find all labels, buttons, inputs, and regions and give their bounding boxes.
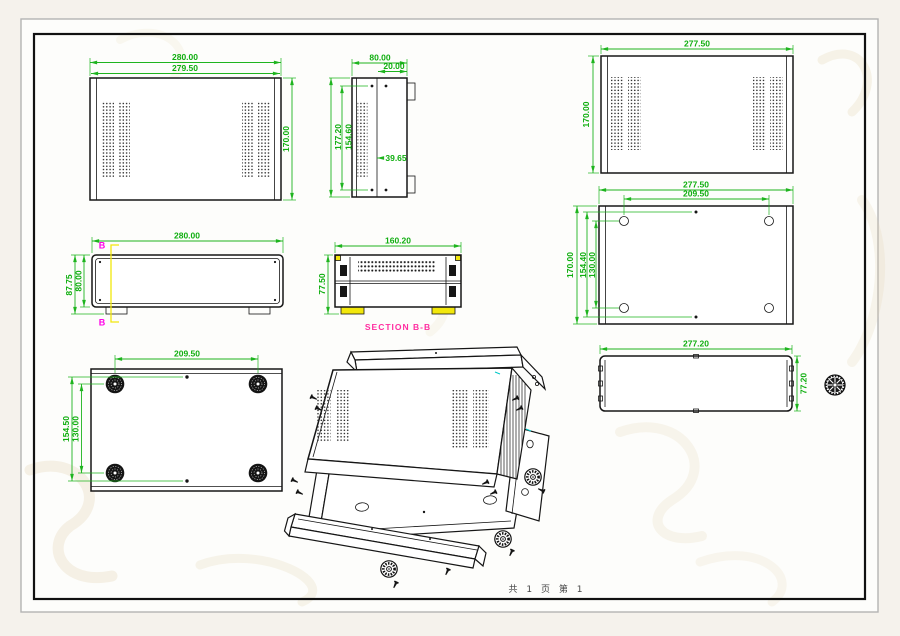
- dim-label: 280.00: [172, 52, 198, 62]
- rubber-foot: [249, 375, 268, 394]
- sheet-footer: 共 1 页 第 1: [509, 583, 586, 595]
- dim-label: 277.20: [683, 339, 709, 349]
- dim-label: 170.00: [281, 126, 291, 152]
- dim-label: 279.50: [172, 63, 198, 73]
- exploded-foot: [495, 531, 511, 547]
- section-marker-bottom: B: [99, 318, 106, 328]
- dim-label: 154.60: [344, 124, 354, 150]
- dim-label: 130.00: [71, 416, 81, 442]
- dim-label: 77.20: [799, 373, 809, 395]
- dim-label: 80.00: [74, 270, 84, 292]
- rubber-foot: [106, 375, 125, 394]
- drawing-sheet: 280.00 279.50 170.00 80.00 20.00 177.20 …: [0, 0, 900, 636]
- dim-label: 77.50: [317, 273, 327, 295]
- rubber-foot: [249, 464, 268, 483]
- vent-pattern: [358, 101, 368, 177]
- exploded-foot: [525, 469, 541, 485]
- foot-wheel-detail: [825, 375, 845, 395]
- exploded-cover: [305, 368, 531, 487]
- dim-label: 170.00: [581, 101, 591, 127]
- dim-label: 20.00: [383, 61, 405, 71]
- dim-label: 130.00: [587, 252, 597, 278]
- section-title: SECTION B-B: [365, 322, 431, 332]
- dim-label: 160.20: [385, 236, 411, 246]
- rubber-foot: [106, 464, 125, 483]
- dim-label: 87.75: [64, 274, 74, 296]
- view-bottom: 209.50 154.50 130.00: [61, 349, 282, 492]
- dim-label: 177.20: [333, 124, 343, 150]
- dim-label: 154.50: [61, 416, 71, 442]
- exploded-foot: [381, 561, 397, 577]
- section-marker-top: B: [99, 241, 106, 251]
- dim-label: 280.00: [174, 231, 200, 241]
- dim-label: 209.50: [174, 349, 200, 359]
- dim-label: 39.65: [385, 153, 407, 163]
- vent-pattern: [358, 261, 436, 273]
- dim-label: 277.50: [684, 39, 710, 49]
- dim-label: 209.50: [683, 189, 709, 199]
- dim-label: 170.00: [565, 252, 575, 278]
- view-cover: 277.50 170.00: [581, 39, 793, 174]
